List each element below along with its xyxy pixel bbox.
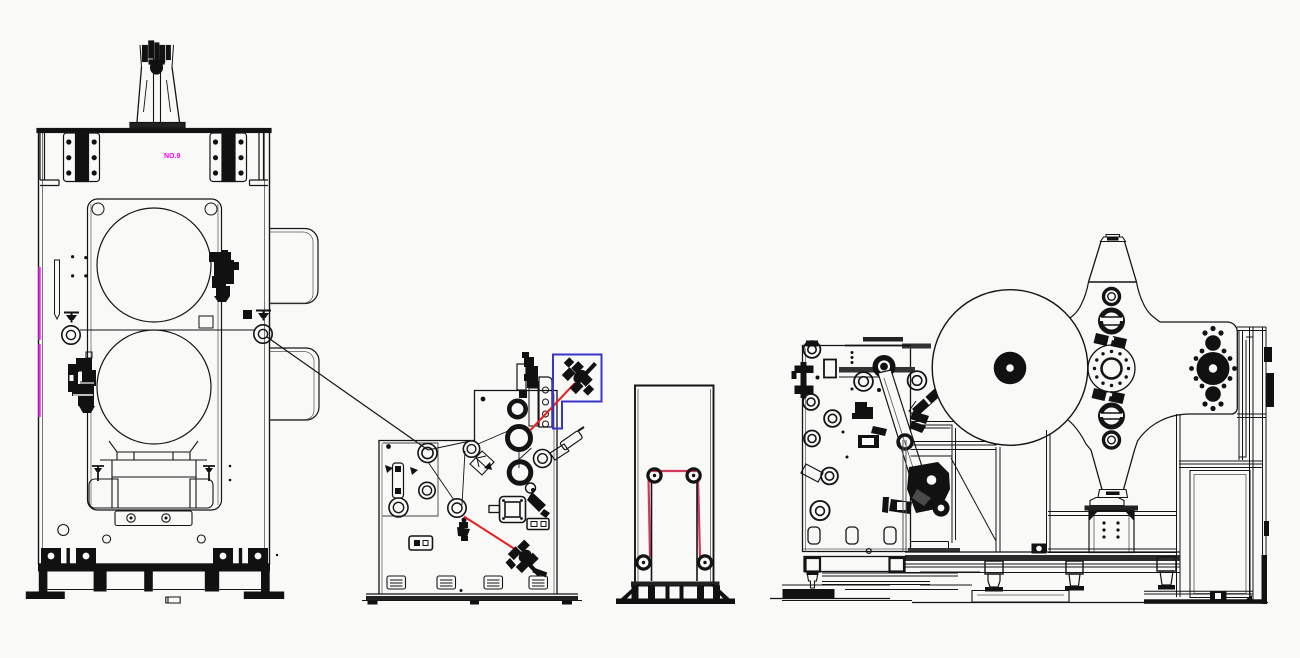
svg-text:NO.9: NO.9 [164, 153, 180, 160]
